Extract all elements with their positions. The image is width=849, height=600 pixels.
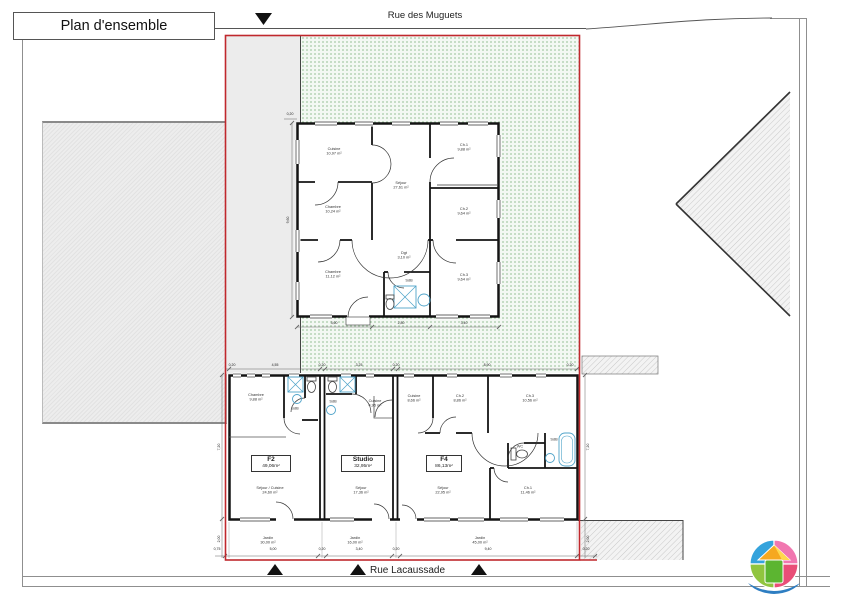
plan-drawing [0, 0, 849, 600]
room-label: SdB [550, 438, 557, 443]
room-label: Séjour / Cuisine24,60 m² [256, 486, 283, 495]
street-name-bottom-text: Rue Lacaussade [370, 565, 445, 576]
dimension-label: 2,00 [217, 536, 221, 543]
garden-label: Jardin30,00 m² [260, 536, 275, 545]
unit-label-f4: F4 86,13m² [426, 455, 462, 472]
garden-label: Jardin16,00 m² [347, 536, 362, 545]
room-label: Séjour17,36 m² [353, 486, 368, 495]
garden-label: Jardin45,00 m² [472, 536, 487, 545]
room-label: Chambre10,24 m² [325, 205, 341, 214]
plan-title-text: Plan d'ensemble [61, 18, 168, 34]
room-label: Ch.39,64 m² [457, 273, 470, 282]
dimension-label: 5,00 [270, 547, 277, 551]
neighbour-strip-right [578, 356, 683, 560]
room-label: Cuisine4,95 m² [368, 399, 381, 408]
dimension-label: 4,55 [272, 363, 279, 367]
unit-label-f2: F2 49,06m² [251, 455, 291, 472]
dimension-label: 0,20 [583, 547, 590, 551]
room-label: Séjour22,95 m² [435, 486, 450, 495]
room-label: Ch.28,86 m² [453, 394, 466, 403]
room-label: SdB [329, 400, 336, 405]
room-label: Chambre9,88 m² [248, 393, 264, 402]
room-label: Cuisine8,66 m² [407, 394, 420, 403]
room-label: Ch.111,46 m² [521, 486, 536, 495]
dimension-label: 0,20 [567, 363, 574, 367]
dimension-label: 2,80 [398, 321, 405, 325]
dimension-label: 9,40 [485, 547, 492, 551]
room-label: WC [517, 445, 523, 450]
dimension-label: 3,40 [356, 547, 363, 551]
dimension-label: 0,75 [214, 547, 221, 551]
room-label: SdB [405, 279, 412, 284]
street-curve-line [586, 18, 772, 29]
room-label: SdB [291, 407, 298, 412]
room-label: Cuisine10,97 m² [326, 147, 341, 156]
street-name-top: Rue des Muguets [340, 10, 510, 21]
dimension-label: 0,20 [393, 547, 400, 551]
room-label: Ch.310,56 m² [522, 394, 537, 403]
dimension-label: 3,40 [461, 321, 468, 325]
neighbour-roof-triangle [676, 92, 790, 316]
unit-label-studio: Studio 32,95m² [341, 455, 385, 472]
agency-logo-icon [741, 536, 809, 598]
room-label: Ch.19,88 m² [457, 143, 470, 152]
access-marker-icon [255, 13, 272, 25]
dimension-label: 0,20 [287, 112, 294, 116]
dimension-label: 7,20 [217, 444, 221, 451]
dimension-label: 0,20 [319, 363, 326, 367]
room-label: Ch.29,64 m² [457, 207, 470, 216]
site-plan-sheet: Plan d'ensemble Rue des Muguets Rue Laca… [0, 0, 849, 600]
plan-title: Plan d'ensemble [13, 12, 215, 40]
room-label: Dgt3,10 m² [397, 251, 410, 260]
street-name-top-text: Rue des Muguets [388, 10, 462, 21]
dimension-label: 7,20 [586, 444, 590, 451]
street-name-bottom: Rue Lacaussade [345, 565, 470, 576]
dimension-label: 8,90 [484, 363, 491, 367]
dimension-label: 3,25 [356, 363, 363, 367]
dimension-label: 9,60 [286, 217, 290, 224]
dimension-label: 2,00 [586, 536, 590, 543]
dimension-label: 3,60 [331, 321, 338, 325]
access-marker-icon [267, 564, 283, 575]
room-label: Séjour27,61 m² [393, 181, 408, 190]
dimension-label: 0,20 [393, 363, 400, 367]
dimension-label: 0,20 [319, 547, 326, 551]
room-label: Chambre11,12 m² [325, 270, 341, 279]
access-marker-icon [471, 564, 487, 575]
dimension-label: 0,20 [229, 363, 236, 367]
